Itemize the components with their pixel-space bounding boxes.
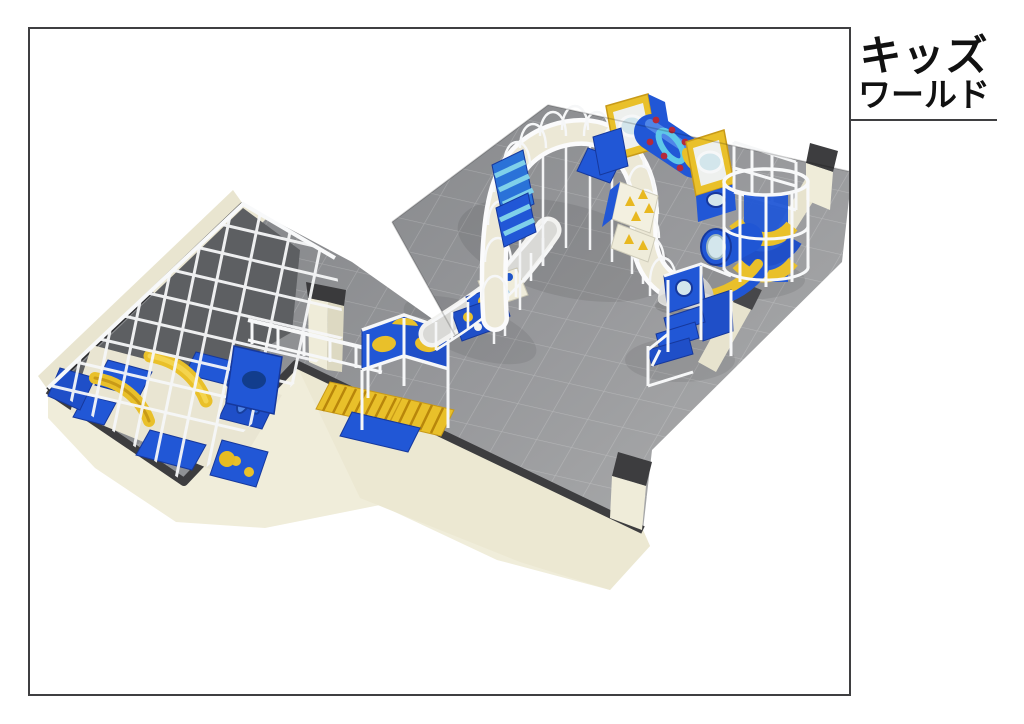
- drawing-sheet: キッズ ワールド: [0, 0, 1024, 724]
- title-head: キッズ ワールド: [851, 27, 997, 121]
- blue-diamond-panel: [593, 128, 628, 175]
- title-block: キッズ ワールド: [849, 27, 997, 696]
- title-line-1: キッズ: [859, 35, 988, 79]
- title-line-2: ワールド: [858, 79, 990, 114]
